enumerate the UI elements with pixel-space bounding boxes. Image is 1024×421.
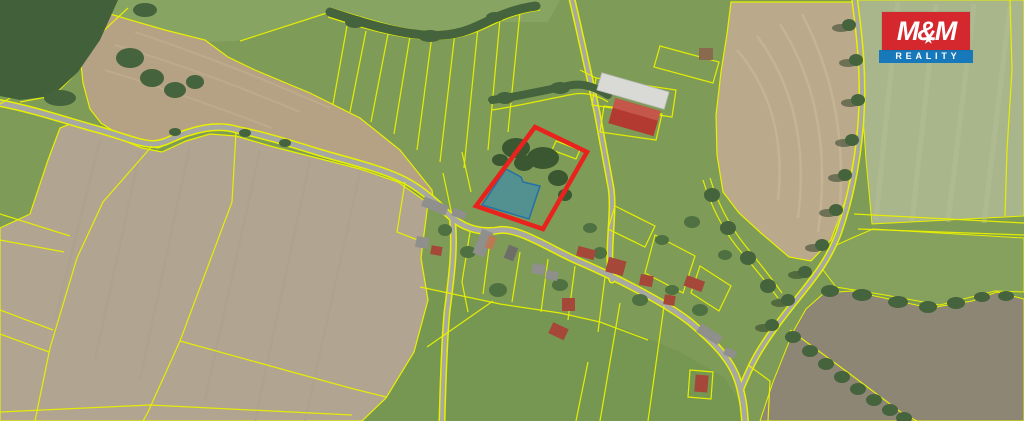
logo-star-icon: ★ <box>923 33 934 45</box>
logo-brand-box: M&M ★ <box>882 12 970 50</box>
aerial-map[interactable] <box>0 0 1024 421</box>
logo-tagline-bar: REALITY <box>879 50 973 63</box>
mm-reality-logo: M&M ★ REALITY <box>879 12 973 63</box>
logo-tagline: REALITY <box>895 51 960 61</box>
map-screenshot: M&M ★ REALITY <box>0 0 1024 421</box>
